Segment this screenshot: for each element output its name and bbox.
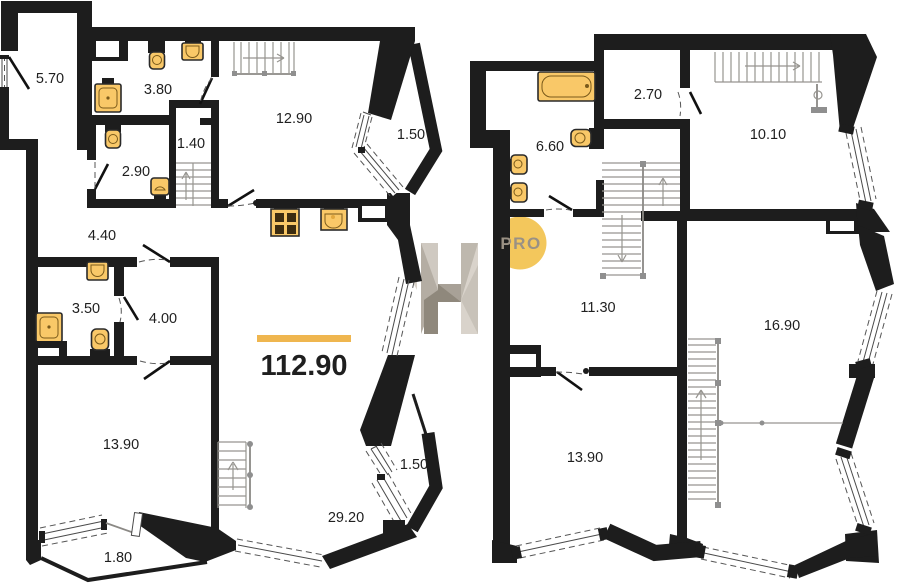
svg-text:1.50: 1.50 xyxy=(397,127,425,143)
svg-text:12.90: 12.90 xyxy=(276,111,312,127)
svg-text:4.00: 4.00 xyxy=(149,311,177,327)
svg-text:13.90: 13.90 xyxy=(567,450,603,466)
svg-text:1.40: 1.40 xyxy=(177,136,205,152)
svg-text:10.10: 10.10 xyxy=(750,127,786,143)
svg-text:2.90: 2.90 xyxy=(122,164,150,180)
svg-text:6.60: 6.60 xyxy=(536,139,564,155)
svg-text:16.90: 16.90 xyxy=(764,318,800,334)
svg-text:2.70: 2.70 xyxy=(634,87,662,103)
svg-text:112.90: 112.90 xyxy=(260,350,347,382)
svg-text:13.90: 13.90 xyxy=(103,437,139,453)
svg-text:5.70: 5.70 xyxy=(36,71,64,87)
svg-text:11.30: 11.30 xyxy=(580,300,615,316)
svg-text:4.40: 4.40 xyxy=(88,228,116,244)
svg-text:PRO: PRO xyxy=(500,234,541,253)
svg-text:29.20: 29.20 xyxy=(328,510,364,526)
svg-text:3.80: 3.80 xyxy=(144,82,172,98)
svg-text:3.50: 3.50 xyxy=(72,301,100,317)
svg-text:1.80: 1.80 xyxy=(104,550,132,566)
svg-text:1.50: 1.50 xyxy=(400,457,428,473)
